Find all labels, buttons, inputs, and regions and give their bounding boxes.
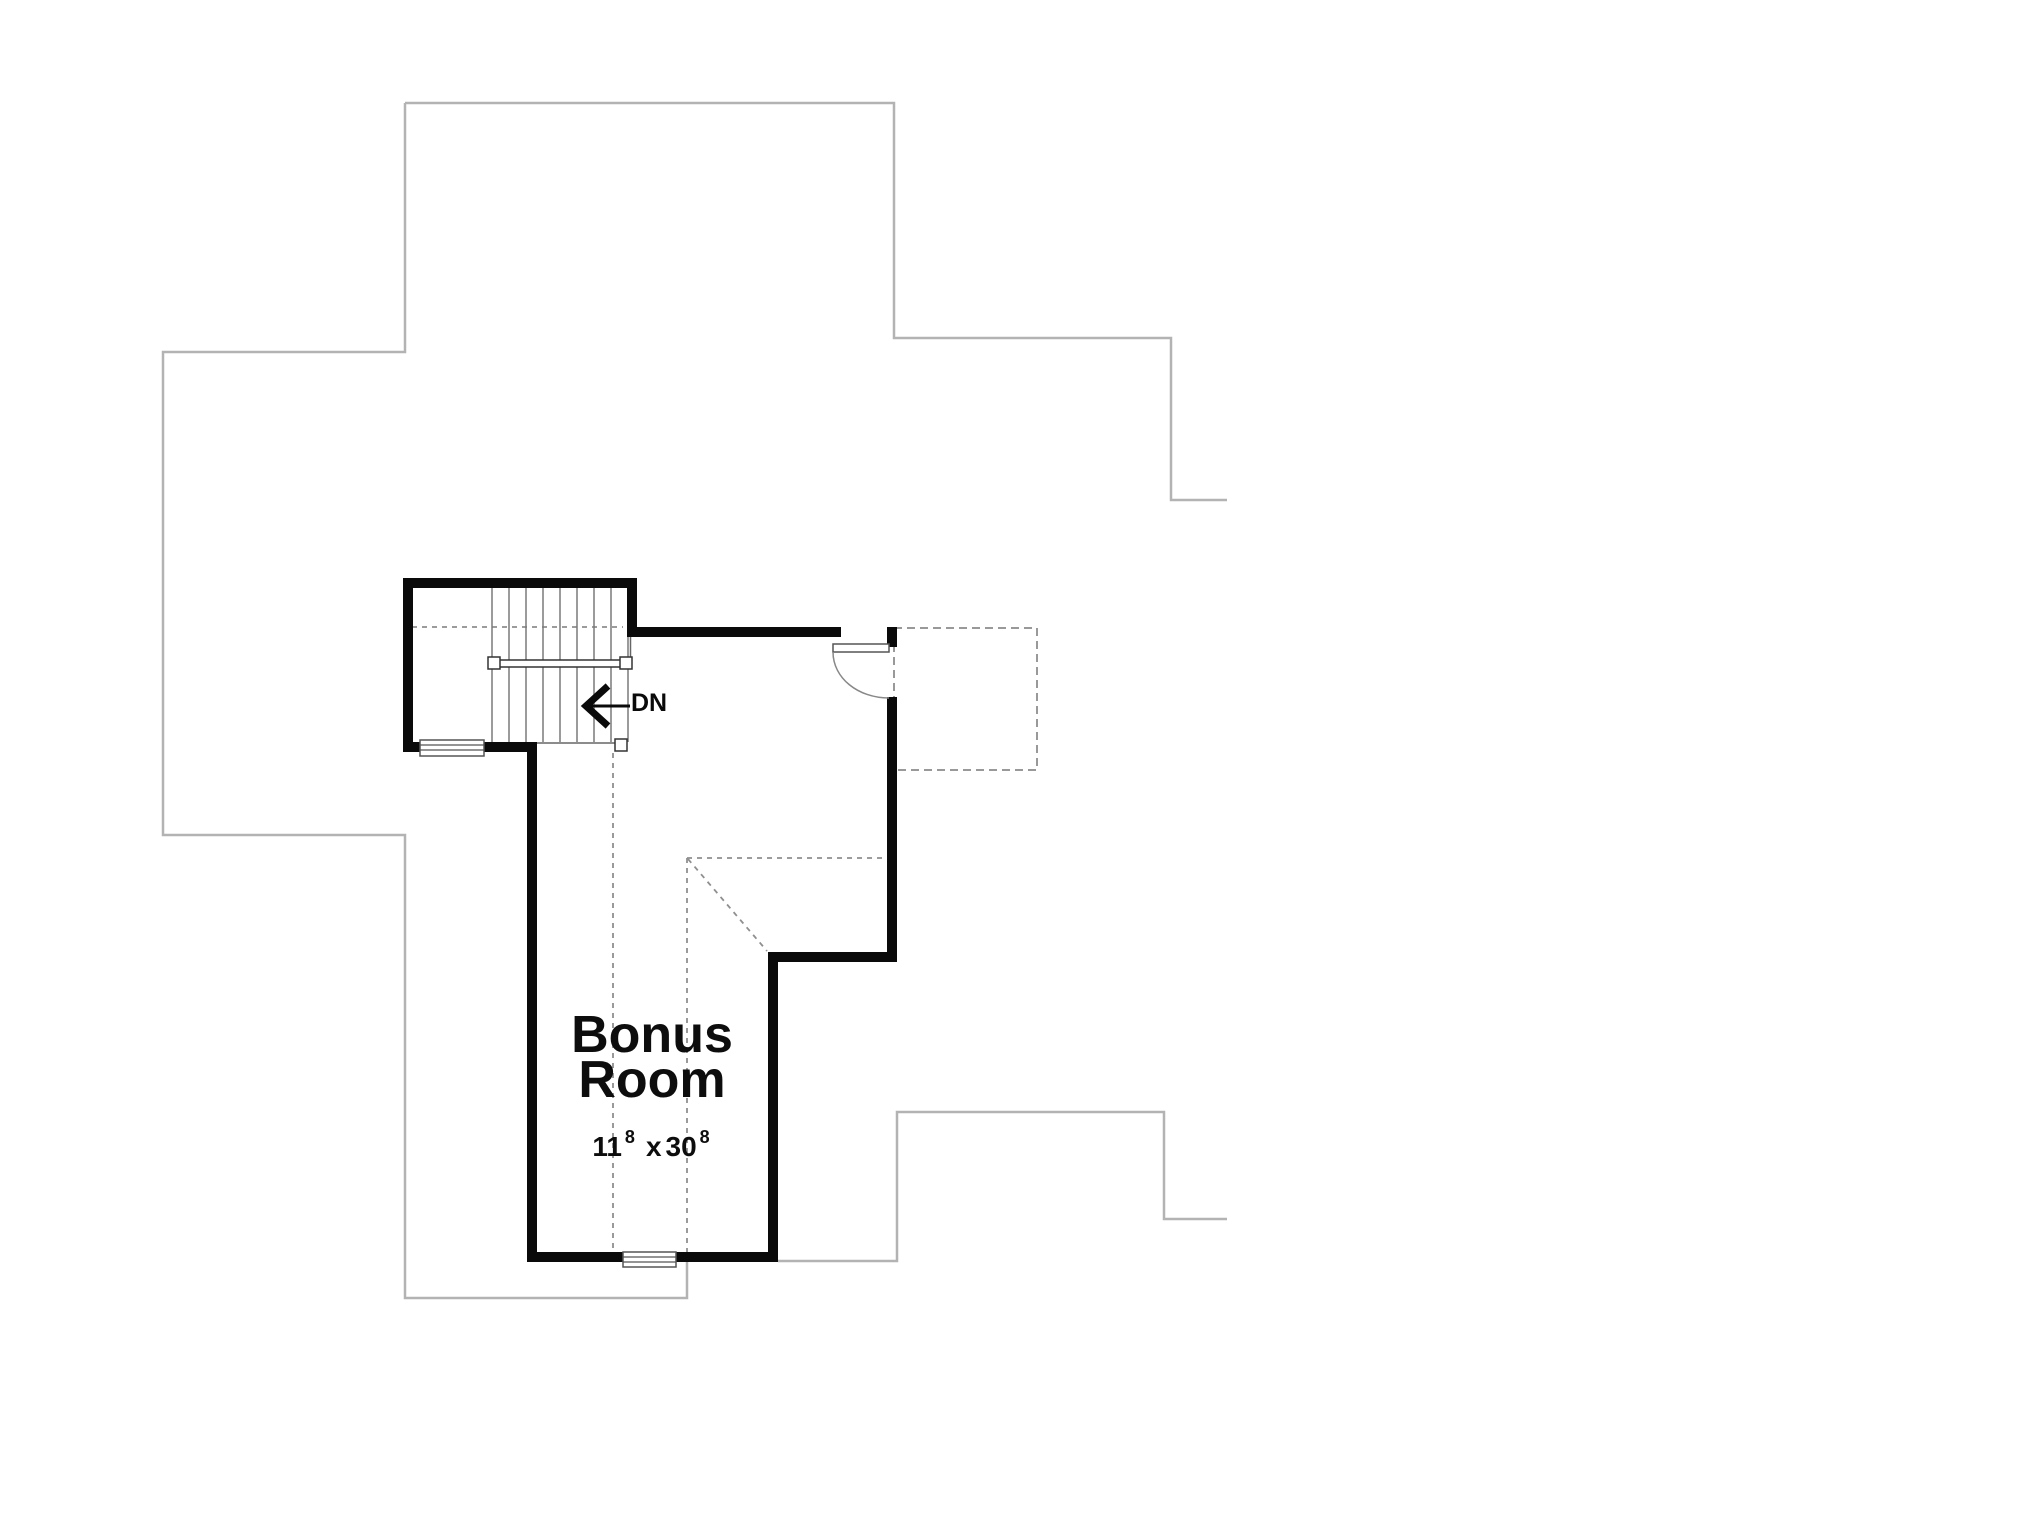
room-label-line2: Room (452, 1058, 852, 1103)
stair-direction-label: DN (631, 691, 667, 716)
door-leaf (833, 644, 889, 652)
room-label: Bonus Room (452, 1013, 852, 1103)
stair-newel-post-bottom (615, 739, 627, 751)
stair-handrail-post-right (620, 657, 632, 669)
roof-outline-left-bottom (163, 103, 687, 1298)
bonus-room-window (623, 1252, 676, 1267)
dimension-width-inches: 8 (625, 1127, 635, 1147)
windows (420, 740, 676, 1267)
wall-room-top (627, 627, 841, 637)
wall-right-lower (768, 952, 778, 1262)
dimension-width-feet: 11 (592, 1131, 622, 1162)
attic-storage-dashed-rect (894, 628, 1037, 770)
room-dimensions: 118x308 (452, 1132, 852, 1165)
dimension-depth-inches: 8 (700, 1127, 710, 1147)
wall-stair-left (403, 578, 413, 752)
wall-left (527, 742, 537, 1262)
door-arc (833, 652, 889, 698)
door-swing (833, 644, 889, 698)
wall-step-horizontal (768, 952, 897, 962)
roof-outline-top-right (405, 103, 1227, 500)
down-arrow (586, 686, 630, 726)
dimension-depth-feet: 30 (666, 1131, 697, 1162)
stair-window (420, 740, 484, 756)
dimension-separator: x (646, 1131, 662, 1162)
wall-right-upper (887, 697, 897, 962)
staircase (488, 588, 632, 751)
floor-plan-drawing (0, 0, 2038, 1536)
stair-handrail (497, 660, 624, 667)
wall-stair-top (403, 578, 637, 588)
ceiling-line-diagonal (688, 859, 767, 951)
stair-handrail-post-left (488, 657, 500, 669)
roof-outline (163, 103, 1227, 1298)
floor-plan-canvas: Bonus Room 118x308 DN (0, 0, 2038, 1536)
attic-storage-outline (894, 628, 1037, 770)
